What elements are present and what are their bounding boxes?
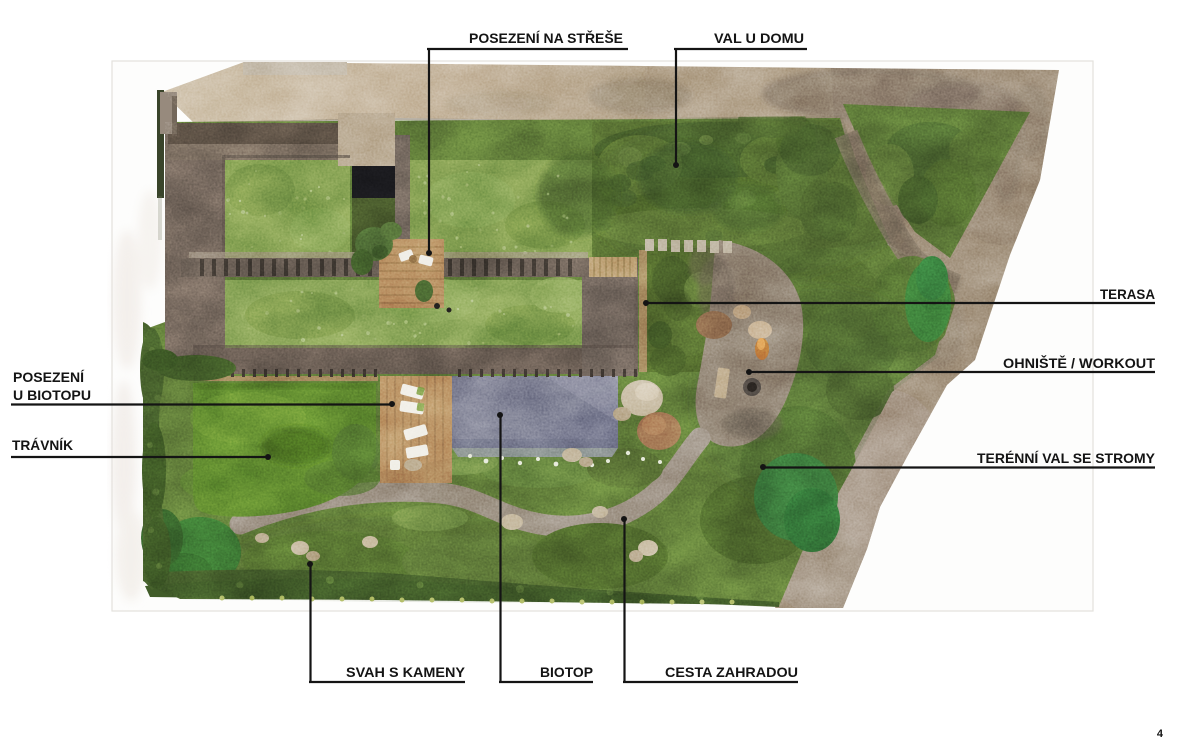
- svg-text:VAL U DOMU: VAL U DOMU: [714, 30, 804, 46]
- svg-text:4: 4: [1157, 728, 1164, 739]
- svg-text:CESTA ZAHRADOU: CESTA ZAHRADOU: [665, 664, 798, 680]
- svg-text:TRÁVNÍK: TRÁVNÍK: [12, 437, 73, 453]
- svg-text:U BIOTOPU: U BIOTOPU: [13, 387, 91, 403]
- svg-text:TERÉNNÍ VAL SE STROMY: TERÉNNÍ VAL SE STROMY: [977, 450, 1156, 466]
- svg-text:SVAH S KAMENY: SVAH S KAMENY: [346, 664, 466, 680]
- svg-text:TERASA: TERASA: [1100, 286, 1155, 302]
- svg-text:OHNIŠTĚ / WORKOUT: OHNIŠTĚ / WORKOUT: [1003, 354, 1155, 371]
- svg-text:POSEZENÍ: POSEZENÍ: [13, 369, 85, 385]
- svg-text:BIOTOP: BIOTOP: [540, 664, 593, 680]
- svg-text:POSEZENÍ NA STŘEŠE: POSEZENÍ NA STŘEŠE: [469, 29, 623, 46]
